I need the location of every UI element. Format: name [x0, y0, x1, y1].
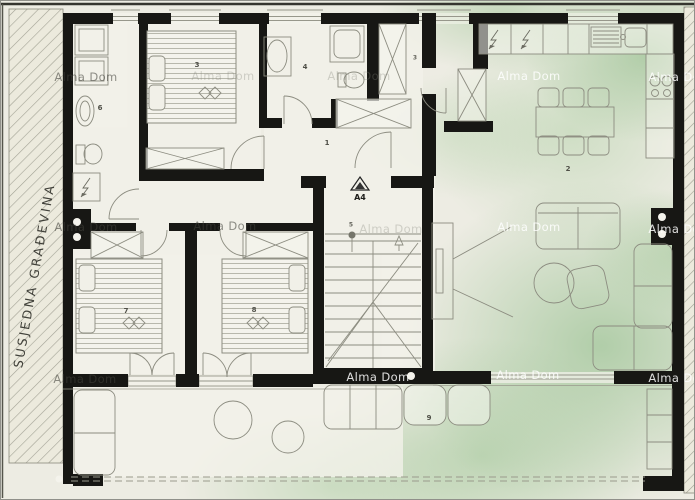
french-door-sill-room8: [199, 376, 253, 386]
corner-sofa: [593, 244, 672, 370]
window-top-3: [267, 10, 323, 24]
stair-start-dot: [349, 232, 356, 239]
terrace-slider-window: [491, 372, 614, 383]
floor-plan-canvas: A4 SUSJEDNA GRAĐEVINA 1233456789 Alma Do…: [0, 0, 695, 500]
pillow: [79, 307, 95, 333]
sofa-two-seat: [536, 203, 620, 249]
pillow: [149, 85, 165, 110]
section-marker-text: A4: [354, 193, 366, 202]
window-top-2: [169, 10, 221, 24]
bedroom3-furniture: [146, 31, 236, 169]
loggia9-furniture: [404, 385, 672, 469]
living-room-furniture: [432, 203, 672, 370]
window-top-1: [111, 10, 140, 24]
neighbor-building-hatch-left: [9, 9, 63, 463]
kitchen-counter: [479, 24, 674, 158]
pillow: [289, 265, 305, 291]
pillow: [149, 56, 165, 81]
armchair: [565, 263, 610, 310]
window-top-5: [566, 10, 620, 24]
pillow: [289, 307, 305, 333]
neighbor-building-hatch-right: [684, 7, 695, 493]
dining-set: [536, 88, 614, 155]
french-door-sill-room7: [128, 376, 176, 386]
tv-unit: [432, 223, 513, 319]
pillow: [79, 265, 95, 291]
floor-plan-drawing: A4: [1, 1, 695, 500]
